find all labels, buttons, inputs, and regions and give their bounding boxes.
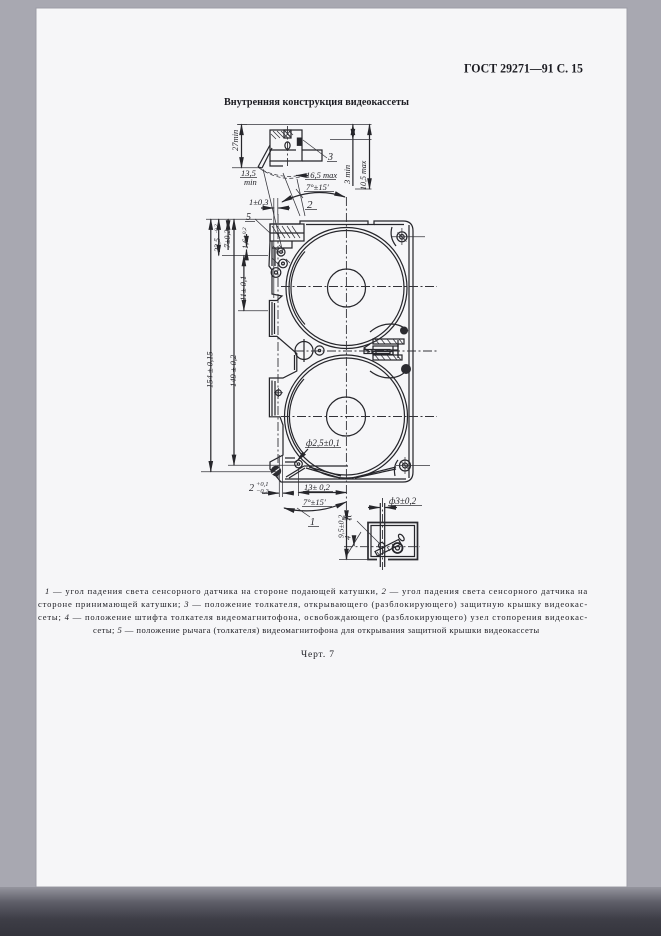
svg-text:+0,2: +0,2 (242, 227, 248, 238)
svg-text:-0,2: -0,2 (214, 224, 220, 233)
svg-text:сеты; 5 — положение рычага (то: сеты; 5 — положение рычага (толкателя) в… (93, 625, 540, 635)
svg-text:min: min (244, 177, 257, 187)
svg-text:−0,2: −0,2 (256, 488, 269, 495)
svg-text:10,5 max: 10,5 max (359, 160, 368, 190)
svg-text:7±0,2: 7±0,2 (223, 230, 232, 248)
svg-text:11± 0,1: 11± 0,1 (238, 276, 248, 301)
svg-text:1,6: 1,6 (241, 239, 250, 249)
svg-text:27min: 27min (230, 130, 240, 151)
svg-text:+0,1: +0,1 (256, 481, 269, 488)
svg-text:Внутренняя конструкция видеока: Внутренняя конструкция видеокассеты (224, 96, 409, 108)
svg-text:ф3±0,2: ф3±0,2 (389, 496, 417, 506)
svg-text:1 — угол падения света сенсорн: 1 — угол падения света сенсорного датчик… (45, 586, 588, 596)
svg-text:154 ± 0,15: 154 ± 0,15 (205, 351, 215, 388)
svg-text:16,5 max: 16,5 max (306, 170, 337, 180)
svg-text:13± 0,2: 13± 0,2 (304, 482, 331, 492)
svg-text:1±0,3: 1±0,3 (249, 197, 269, 207)
svg-text:7°±15′: 7°±15′ (306, 182, 329, 192)
svg-text:3 min: 3 min (342, 165, 352, 185)
svg-text:сеты; 4 — положение штифта тол: сеты; 4 — положение штифта толкателя вид… (38, 612, 588, 622)
svg-text:ф2,5±0,1: ф2,5±0,1 (306, 438, 340, 448)
svg-text:стороне принимающей катушки; 3: стороне принимающей катушки; 3 — положен… (38, 599, 588, 609)
svg-text:Черт. 7: Черт. 7 (301, 650, 334, 660)
svg-text:ГОСТ 29271—91 С. 15: ГОСТ 29271—91 С. 15 (464, 61, 583, 76)
svg-text:23,5: 23,5 (213, 238, 222, 252)
svg-text:7°±15′: 7°±15′ (303, 497, 326, 507)
svg-text:149 ± 0,2: 149 ± 0,2 (228, 354, 238, 387)
svg-text:2: 2 (249, 483, 254, 494)
